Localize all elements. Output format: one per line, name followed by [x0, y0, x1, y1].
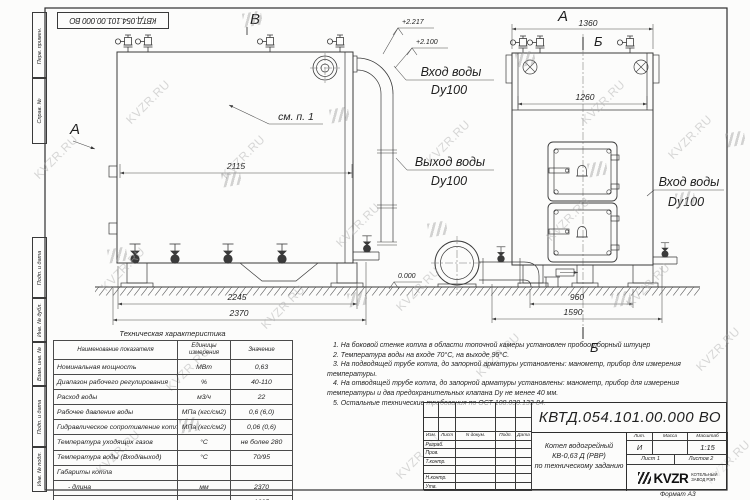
valve-icon: [277, 244, 288, 263]
spec-cell: 0,06 (0,6): [231, 420, 293, 435]
spec-row: Габариты котла: [54, 465, 293, 480]
valve-icon: [257, 35, 274, 52]
ref-note: см. п. 1: [278, 111, 314, 123]
spec-cell: - ширина: [54, 495, 178, 500]
spec-row: Температура уходящих газов°Сне более 280: [54, 435, 293, 450]
role-razrab: Разраб.: [424, 441, 456, 449]
elevation-mid: +2.100: [416, 39, 438, 46]
technical-notes: 1. На боковой стенке котла в области топ…: [327, 341, 723, 408]
spec-cell: МВт: [178, 360, 231, 375]
spec-cell: Температура воды (Вход/выход): [54, 450, 178, 465]
spec-cell: %: [178, 375, 231, 390]
spec-col-value: Значение: [231, 341, 293, 360]
revision-grid: [424, 403, 531, 432]
drawing-sheet: KVZR.RU KVZR.RU KVZR.RU KVZR.RU KVZR.RU …: [0, 0, 750, 500]
margin-stamp-perv-primen: Перв. примен.: [32, 12, 47, 79]
spec-cell: мм: [178, 480, 231, 495]
company-logo-text: KVZR: [654, 471, 689, 486]
dim-2370: 2370: [229, 308, 249, 318]
doc-number: КВТД.054.101.00.000 ВО: [532, 403, 728, 433]
spec-header-row: Наименование показателя Единицы измерени…: [54, 341, 293, 360]
scale-label: Масштаб: [688, 433, 728, 441]
col-list: Лист: [439, 432, 456, 441]
dim-2245: 2245: [227, 292, 247, 302]
dim-1360: 1360: [579, 18, 598, 28]
margin-stamp-inv-dubl: Инв. № дубл.: [32, 297, 47, 343]
doc-number-top: КВТД.054.101.00.000 ВО: [58, 13, 168, 28]
spec-cell: 2370: [231, 480, 293, 495]
spec-cell: - длина: [54, 480, 178, 495]
dim-1590: 1590: [564, 307, 583, 317]
product-line2: КВ-0,63 Д (РВР): [532, 451, 626, 461]
doc-number-top-box: КВТД.054.101.00.000 ВО: [57, 12, 169, 29]
spec-cell: м3/ч: [178, 390, 231, 405]
role-empty: [424, 466, 456, 474]
spec-cell: 1605: [231, 495, 293, 500]
valve-icon: [115, 35, 132, 52]
margin-stamp-label: Инв. № дубл.: [37, 303, 43, 337]
scale-value: 1:15: [688, 441, 728, 455]
spec-cell: Температура уходящих газов: [54, 435, 178, 450]
elevation-ground: 0.000: [398, 273, 416, 280]
sheet-number: Лист 1: [627, 455, 675, 465]
margin-stamp-label: Взам. инв. №: [37, 347, 43, 381]
spec-cell: Габариты котла: [54, 465, 178, 480]
spec-cell: Расход воды: [54, 390, 178, 405]
furnace-door-top: [548, 142, 619, 201]
spec-row: Температура воды (Вход/выход)°С70/95: [54, 450, 293, 465]
valve-icon: [170, 244, 181, 263]
spec-row: - длинамм2370: [54, 480, 293, 495]
spec-cell: 40-110: [231, 375, 293, 390]
spec-cell: Гидравлическое сопротивление котла: [54, 420, 178, 435]
outlet-label-line2: Dy100: [431, 174, 467, 188]
product-line1: Котел водогрейный: [532, 441, 626, 451]
role-prov: Пров.: [424, 449, 456, 457]
spec-cell: [231, 465, 293, 480]
note-3: 3. На подводящей трубе котла, до запорно…: [327, 360, 723, 379]
spec-cell: МПа (кгс/см2): [178, 405, 231, 420]
margin-stamp-label: Перв. примен.: [37, 27, 43, 64]
valve-icon: [510, 36, 527, 53]
spec-cell: мм: [178, 495, 231, 500]
margin-stamp-inv-podl: Инв. № подл.: [32, 446, 47, 492]
margin-stamp-podp-data-1: Подп. и дата: [32, 237, 47, 299]
title-block-signatures: Изм. Лист N докум. Подп. Дата Разраб. Пр…: [424, 403, 532, 489]
mass-value: [653, 441, 688, 455]
spec-cell: °С: [178, 450, 231, 465]
kvzr-logo-icon: [638, 472, 651, 484]
spec-cell: не более 280: [231, 435, 293, 450]
margin-stamp-label: Справ. №: [37, 98, 43, 123]
spec-col-name: Наименование показателя: [54, 341, 178, 360]
role-tkontr: Т.контр.: [424, 458, 456, 466]
section-letter-b-top: Б: [594, 34, 603, 49]
spec-cell: МПа (кгс/см2): [178, 420, 231, 435]
inlet-label-line2: Dy100: [431, 83, 467, 97]
sheets-total: Листов 2: [675, 455, 728, 465]
spec-cell: Рабочее давление воды: [54, 405, 178, 420]
col-izm: Изм.: [424, 432, 439, 441]
spec-table: Наименование показателя Единицы измерени…: [53, 340, 293, 500]
elevation-top: +2.217: [402, 19, 425, 26]
title-block: Изм. Лист N докум. Подп. Дата Разраб. Пр…: [423, 402, 727, 490]
signature-rows: Разраб. Пров. Т.контр. Н.контр. Утв.: [424, 441, 531, 491]
role-utv: Утв.: [424, 483, 456, 491]
spec-cell: [178, 465, 231, 480]
spec-cell: Диапазон рабочего регулирования: [54, 375, 178, 390]
lit-value: И: [627, 441, 653, 455]
valve-icon: [617, 36, 634, 53]
title-block-meta: Лит. Масса Масштаб И 1:15 Лист 1 Листов …: [627, 433, 728, 491]
format-note: Формат А3: [660, 491, 696, 498]
spec-cell: 0,63: [231, 360, 293, 375]
spec-row: Рабочее давление водыМПа (кгс/см2)0,6 (6…: [54, 405, 293, 420]
margin-stamp-label: Инв. № подл.: [37, 452, 43, 486]
spec-row: Гидравлическое сопротивление котлаМПа (к…: [54, 420, 293, 435]
note-4: 4. На отводящей трубе котла, до запорной…: [327, 379, 723, 398]
product-title: Котел водогрейный КВ-0,63 Д (РВР) по тех…: [532, 433, 627, 491]
dim-1260: 1260: [576, 92, 595, 102]
company-name-line2: ЗАВОД РЭП: [691, 478, 717, 483]
spec-cell: °С: [178, 435, 231, 450]
margin-stamp-label: Подп. и дата: [37, 399, 43, 433]
role-nkontr: Н.контр.: [424, 474, 456, 482]
view-letter-a: А: [557, 8, 568, 25]
signature-header-row: Изм. Лист N докум. Подп. Дата: [424, 432, 531, 441]
note-2: 2. Температура воды на входе 70°С, на вы…: [327, 351, 723, 361]
valve-icon: [497, 247, 506, 262]
note-1: 1. На боковой стенке котла в области топ…: [327, 341, 723, 351]
left-view: [109, 35, 560, 293]
col-podp: Подп.: [496, 432, 516, 441]
spec-row: - ширинамм1605: [54, 495, 293, 500]
spec-col-units: Единицы измерения: [178, 341, 231, 360]
valve-icon: [135, 35, 152, 52]
spec-cell: 70/95: [231, 450, 293, 465]
mass-label: Масса: [653, 433, 688, 441]
margin-stamp-podp-data-2: Подп. и дата: [32, 385, 47, 448]
valve-icon: [362, 236, 371, 252]
col-data: Дата: [516, 432, 532, 441]
lit-label: Лит.: [627, 433, 653, 441]
product-line3: по техническому заданию: [532, 461, 626, 471]
ground-line: [95, 287, 700, 296]
inlet-right-label-line1: Вход воды: [659, 175, 720, 189]
spec-row: Номинальная мощностьМВт0,63: [54, 360, 293, 375]
margin-stamp-label: Подп. и дата: [37, 251, 43, 285]
margin-stamp-sprav-no: Справ. №: [32, 77, 47, 144]
spec-row: Расход водым3/ч22: [54, 390, 293, 405]
valve-icon: [661, 243, 669, 257]
valve-icon: [223, 244, 234, 263]
spec-cell: 22: [231, 390, 293, 405]
title-block-main: КВТД.054.101.00.000 ВО Котел водогрейный…: [532, 403, 728, 489]
company-logo: KVZR КОТЕЛЬНЫЙ ЗАВОД РЭП: [627, 465, 728, 491]
inlet-label-line1: Вход воды: [421, 65, 482, 79]
spec-row: Диапазон рабочего регулирования%40-110: [54, 375, 293, 390]
dim-960: 960: [570, 292, 584, 302]
margin-stamp-vzam-inv: Взам. инв. №: [32, 341, 47, 387]
col-ndoc: N докум.: [456, 432, 496, 441]
spec-table-title: Техническая характеристика: [53, 329, 292, 338]
valve-icon: [327, 35, 344, 52]
spec-cell: Номинальная мощность: [54, 360, 178, 375]
spec-cell: 0,6 (6,0): [231, 405, 293, 420]
